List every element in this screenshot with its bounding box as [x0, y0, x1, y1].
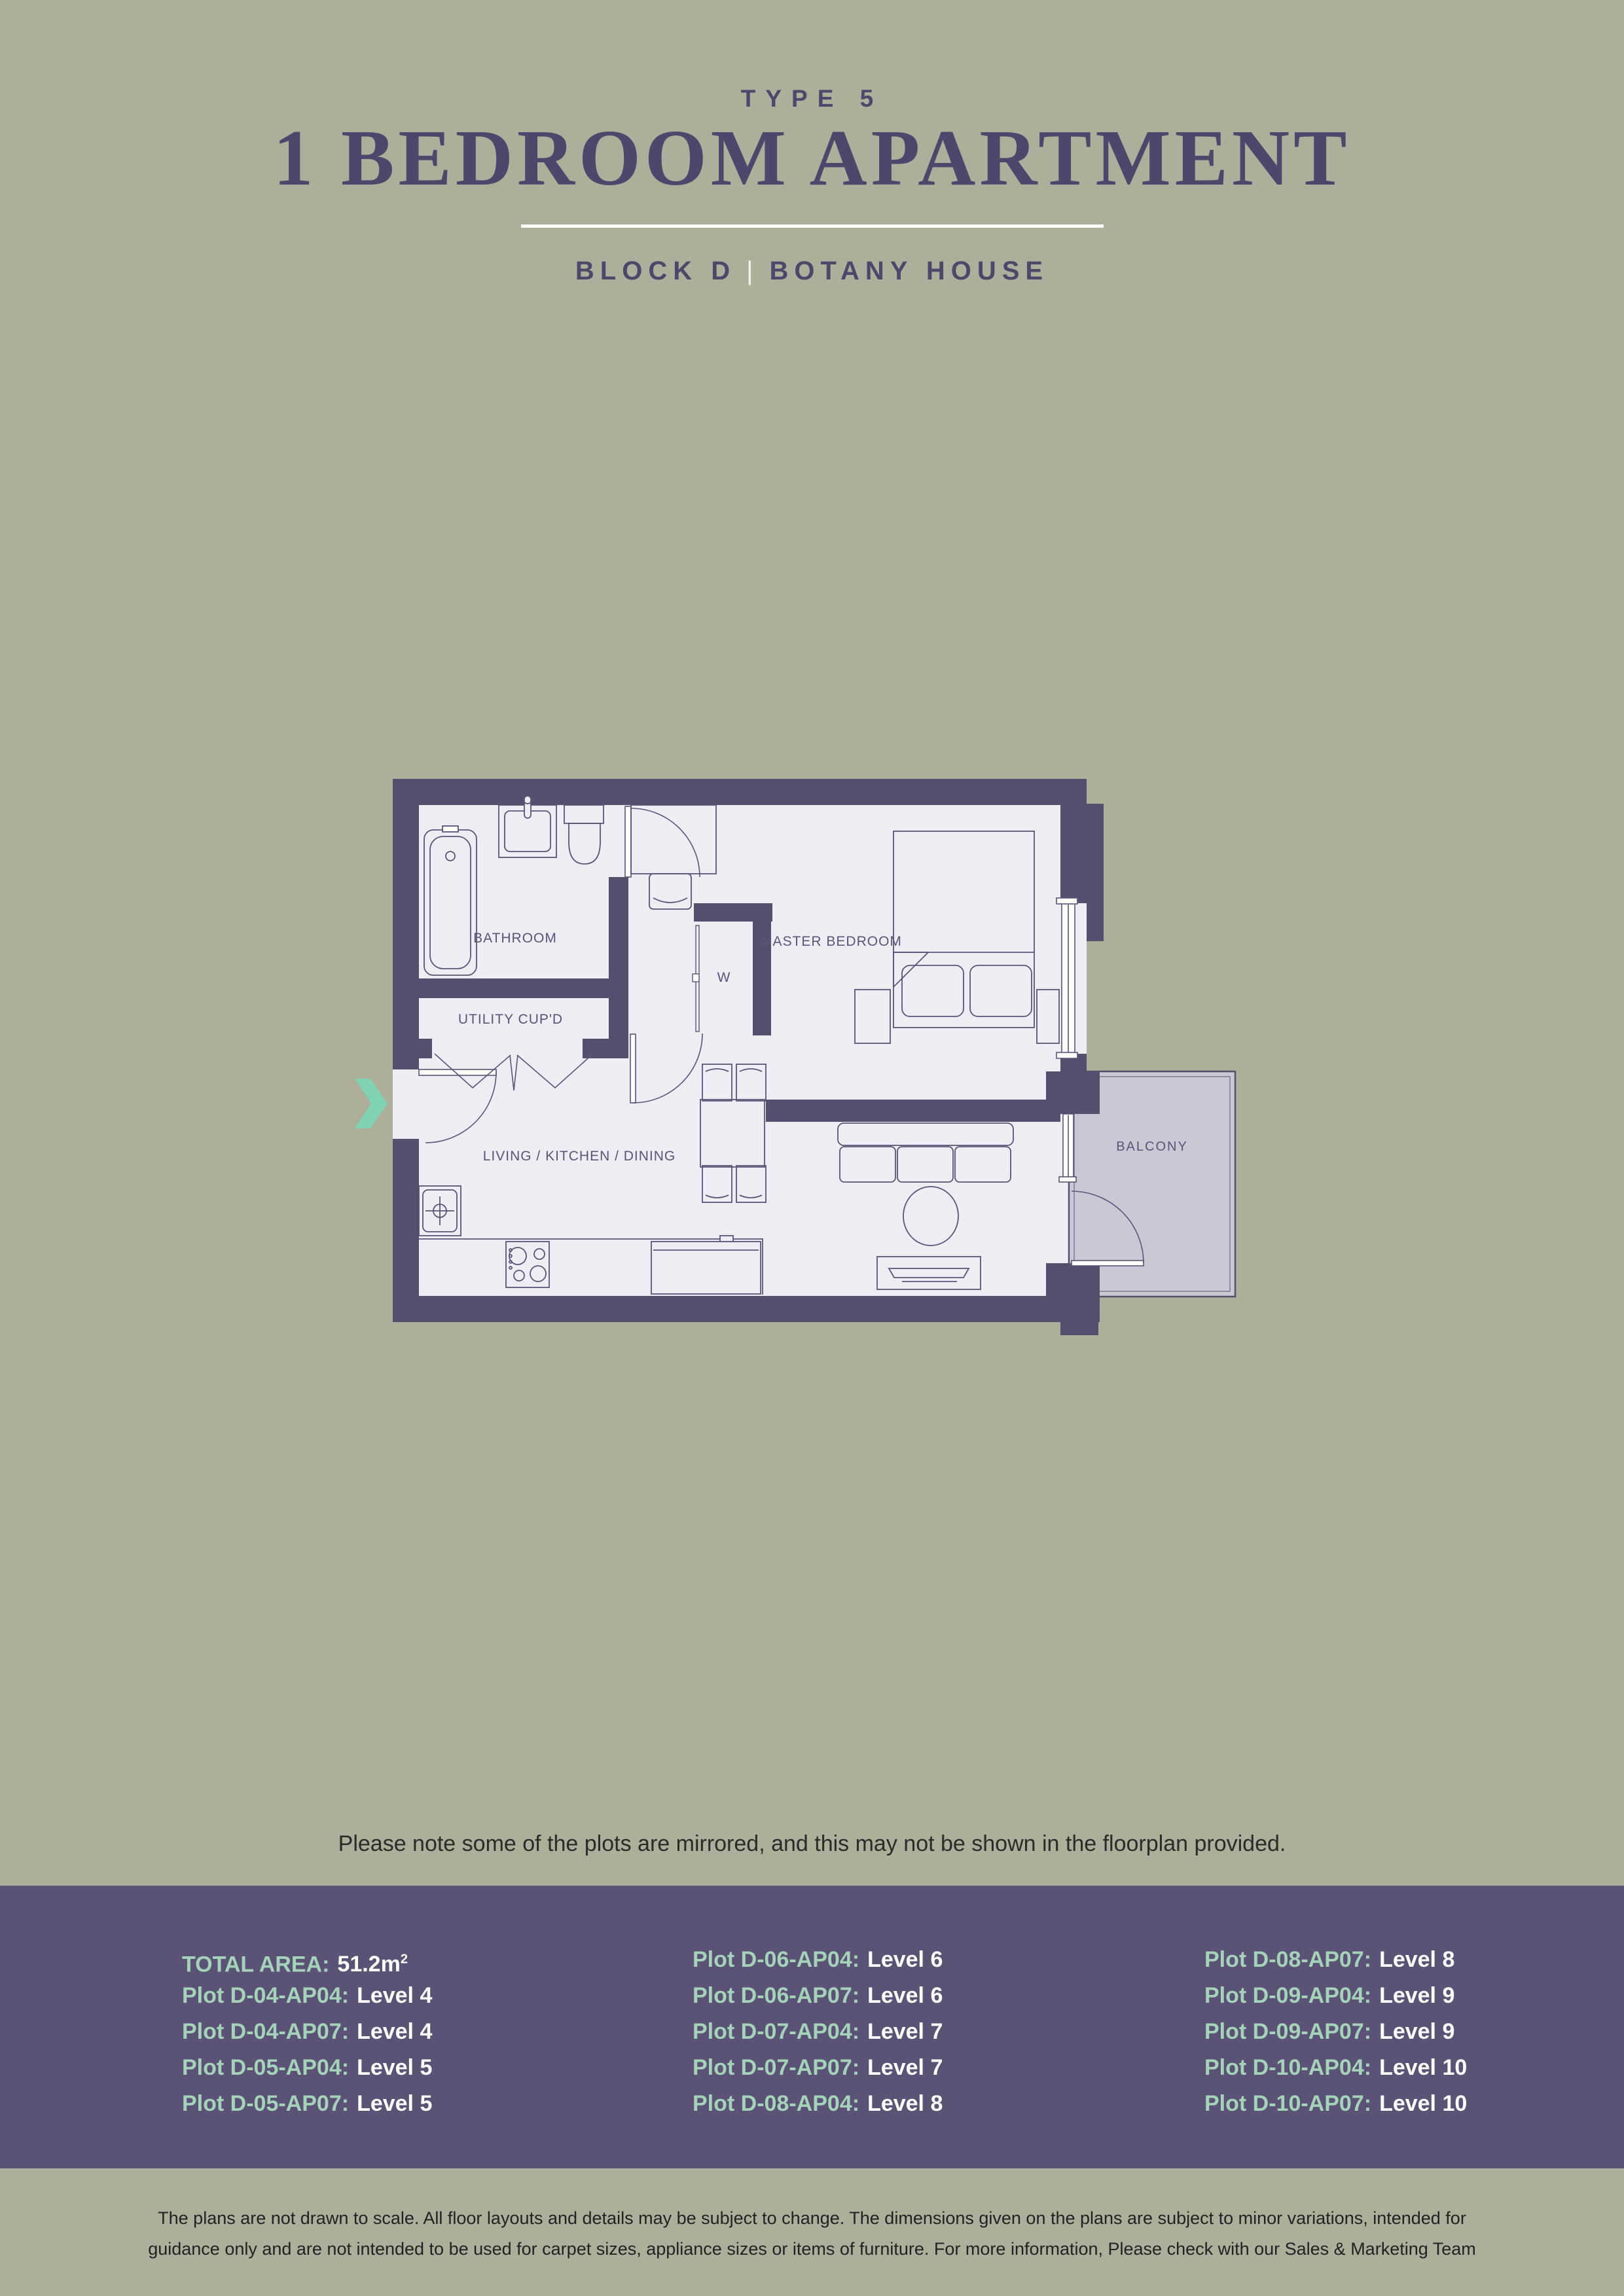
plot-column-2: Plot D-06-AP04:Level 6 Plot D-06-AP07:Le…: [693, 1942, 943, 2122]
utility-label: UTILITY CUP'D: [458, 1012, 563, 1027]
plot-row: Plot D-10-AP04:Level 10: [1204, 2050, 1467, 2086]
type-label: TYPE 5: [0, 85, 1624, 113]
plot-row: Plot D-08-AP07:Level 8: [1204, 1942, 1467, 1978]
disclaimer-line-1: The plans are not drawn to scale. All fl…: [0, 2203, 1624, 2234]
plot-row: Plot D-06-AP04:Level 6: [693, 1942, 943, 1978]
plot-value: Level 9: [1371, 2019, 1454, 2044]
plot-label: Plot D-04-AP04:: [182, 1983, 349, 2008]
block-name: BLOCK D: [575, 257, 736, 285]
floorplan: BALCONY: [353, 746, 1270, 1348]
plot-label: Plot D-05-AP07:: [182, 2091, 349, 2116]
block-subtitle: BLOCK D|BOTANY HOUSE: [0, 257, 1624, 286]
plot-row: Plot D-07-AP04:Level 7: [693, 2014, 943, 2050]
plot-label: Plot D-06-AP07:: [693, 1983, 859, 2008]
wardrobe-label: W: [717, 970, 731, 985]
house-name: BOTANY HOUSE: [770, 257, 1049, 285]
disclaimer: The plans are not drawn to scale. All fl…: [0, 2203, 1624, 2265]
plot-value: Level 7: [859, 2019, 943, 2044]
footer-band: TOTAL AREA:51.2m2 Plot D-04-AP04:Level 4…: [0, 1886, 1624, 2168]
plot-value: Level 4: [349, 1983, 432, 2008]
plot-label: Plot D-10-AP07:: [1204, 2091, 1371, 2116]
plot-label: Plot D-09-AP04:: [1204, 1983, 1371, 2008]
plot-value: Level 8: [859, 2091, 943, 2116]
title-divider: [521, 224, 1104, 228]
plot-label: Plot D-10-AP04:: [1204, 2055, 1371, 2080]
plot-value: Level 10: [1371, 2055, 1467, 2080]
plot-value: Level 9: [1371, 1983, 1454, 2008]
plot-row: Plot D-04-AP07:Level 4: [182, 2014, 432, 2050]
plot-row: Plot D-05-AP07:Level 5: [182, 2086, 432, 2122]
pipe-separator: |: [736, 257, 769, 285]
floor: [393, 779, 1087, 1322]
page-title: 1 BEDROOM APARTMENT: [0, 113, 1624, 204]
plot-value: Level 8: [1371, 1947, 1454, 1972]
total-area-value: 51.2m2: [329, 1952, 408, 1977]
plot-label: Plot D-06-AP04:: [693, 1947, 859, 1972]
plot-column-3: Plot D-08-AP07:Level 8 Plot D-09-AP04:Le…: [1204, 1942, 1467, 2122]
plot-row: Plot D-04-AP04:Level 4: [182, 1978, 432, 2014]
balcony-label: BALCONY: [1116, 1139, 1188, 1154]
master-bedroom-label: MASTER BEDROOM: [761, 934, 902, 949]
plot-row: Plot D-06-AP07:Level 6: [693, 1978, 943, 2014]
disclaimer-line-2: guidance only and are not intended to be…: [0, 2234, 1624, 2265]
plot-value: Level 5: [349, 2055, 432, 2080]
living-label: LIVING / KITCHEN / DINING: [483, 1149, 676, 1164]
plot-value: Level 7: [859, 2055, 943, 2080]
entry-arrow-icon: [355, 1079, 388, 1128]
plot-value: Level 6: [859, 1947, 943, 1972]
plot-row: Plot D-07-AP07:Level 7: [693, 2050, 943, 2086]
plot-row: Plot D-10-AP07:Level 10: [1204, 2086, 1467, 2122]
plot-value: Level 10: [1371, 2091, 1467, 2116]
floorplan-svg: BALCONY: [353, 746, 1270, 1348]
total-area-row: TOTAL AREA:51.2m2: [182, 1942, 432, 1978]
plot-column-1: TOTAL AREA:51.2m2 Plot D-04-AP04:Level 4…: [182, 1942, 432, 2122]
plot-value: Level 4: [349, 2019, 432, 2044]
plot-label: Plot D-08-AP04:: [693, 2091, 859, 2116]
bathroom-label: BATHROOM: [473, 931, 557, 946]
plot-label: Plot D-07-AP07:: [693, 2055, 859, 2080]
plot-label: Plot D-09-AP07:: [1204, 2019, 1371, 2044]
plot-row: Plot D-09-AP04:Level 9: [1204, 1978, 1467, 2014]
page: { "header": { "type_label": "TYPE 5", "t…: [0, 0, 1624, 2296]
plot-row: Plot D-08-AP04:Level 8: [693, 2086, 943, 2122]
plot-value: Level 5: [349, 2091, 432, 2116]
plot-row: Plot D-09-AP07:Level 9: [1204, 2014, 1467, 2050]
plot-label: Plot D-08-AP07:: [1204, 1947, 1371, 1972]
mirror-note: Please note some of the plots are mirror…: [0, 1831, 1624, 1857]
plot-value: Level 6: [859, 1983, 943, 2008]
plot-label: Plot D-05-AP04:: [182, 2055, 349, 2080]
plot-row: Plot D-05-AP04:Level 5: [182, 2050, 432, 2086]
plot-label: Plot D-04-AP07:: [182, 2019, 349, 2044]
plot-label: Plot D-07-AP04:: [693, 2019, 859, 2044]
total-area-label: TOTAL AREA:: [182, 1952, 329, 1977]
total-area-sup: 2: [401, 1952, 408, 1967]
